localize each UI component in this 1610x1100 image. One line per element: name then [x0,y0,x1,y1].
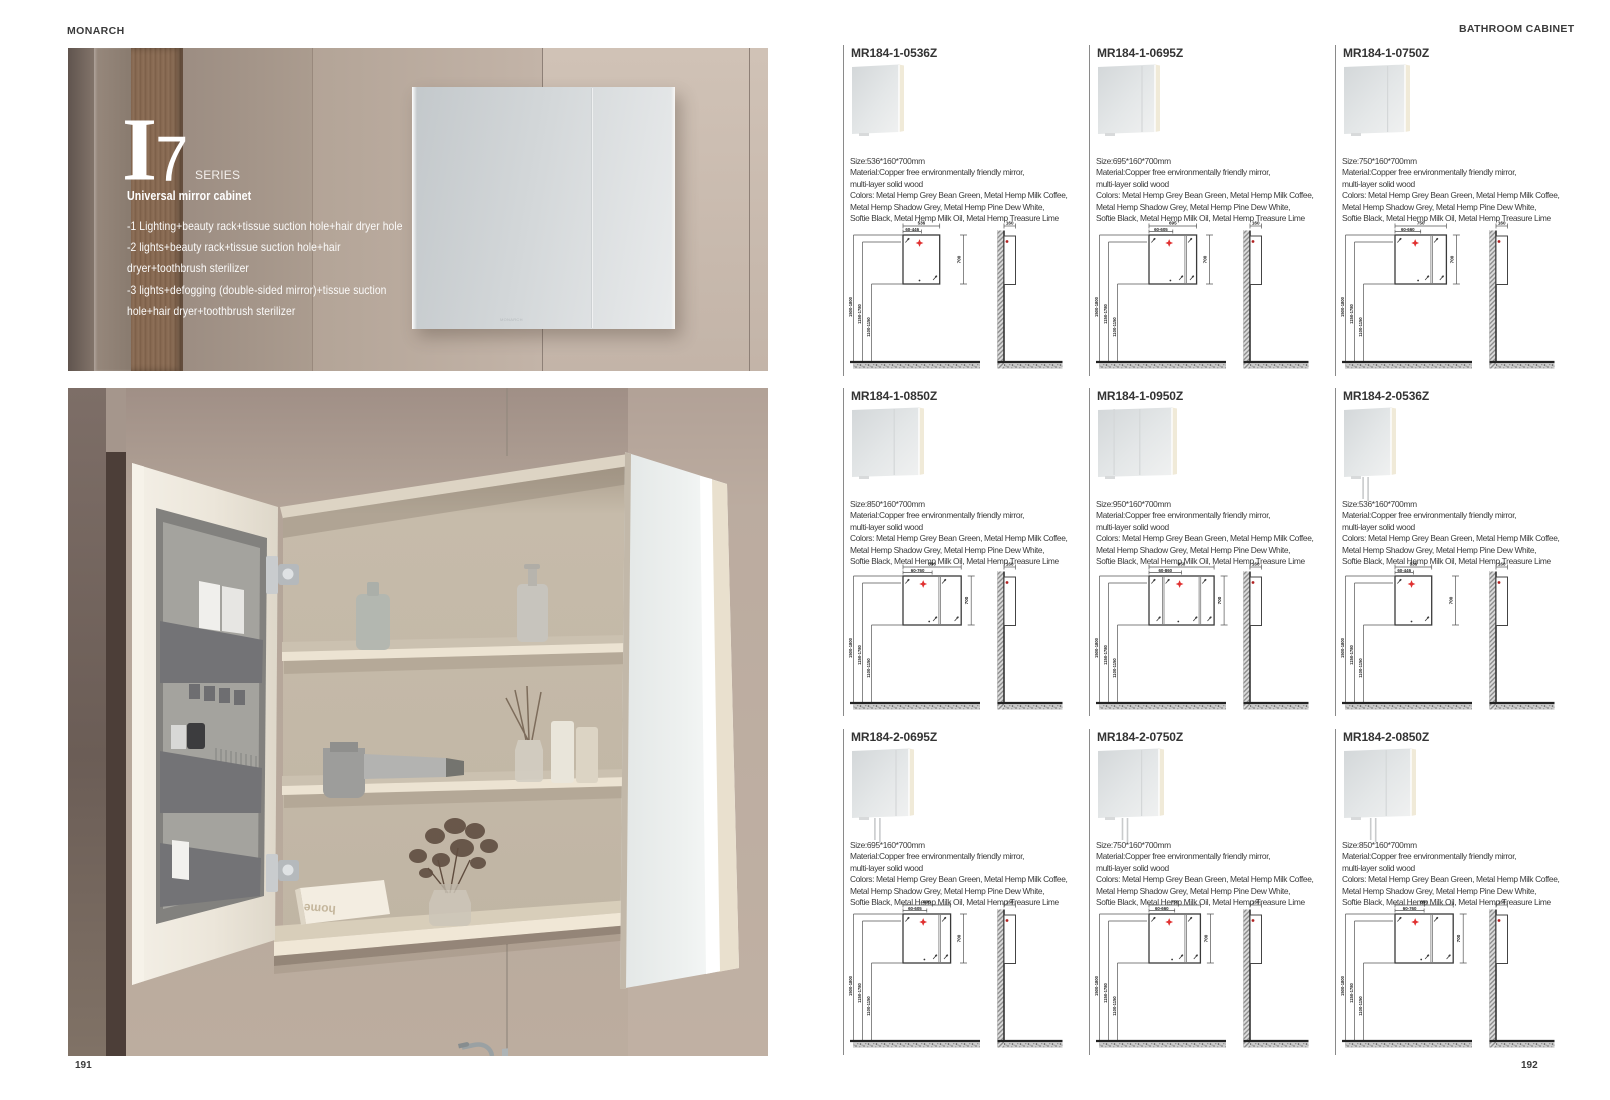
svg-text:1150-1780: 1150-1780 [857,303,862,323]
svg-text:750: 750 [1171,900,1179,905]
svg-text:1150-1780: 1150-1780 [857,644,862,664]
svg-text:1150-1780: 1150-1780 [1349,644,1354,664]
svg-text:1100-1150: 1100-1150 [866,996,871,1016]
svg-text:60-605: 60-605 [1154,227,1168,232]
svg-text:1500-1800: 1500-1800 [1094,975,1099,996]
svg-text:160: 160 [1498,900,1506,905]
svg-text:1100-1150: 1100-1150 [1112,317,1117,337]
svg-text:1150-1780: 1150-1780 [1103,644,1108,664]
svg-text:700: 700 [957,255,962,263]
svg-text:700: 700 [1449,596,1454,604]
svg-text:160: 160 [1252,900,1260,905]
svg-text:1150-1780: 1150-1780 [1103,982,1108,1002]
svg-text:60-605: 60-605 [908,906,922,911]
svg-text:1150-1780: 1150-1780 [1349,982,1354,1002]
svg-text:1500-1800: 1500-1800 [1340,296,1345,317]
svg-text:160: 160 [1006,562,1014,567]
svg-text:60-446: 60-446 [905,227,919,232]
svg-text:60-860: 60-860 [1158,568,1172,573]
svg-text:700: 700 [964,596,969,604]
svg-text:700: 700 [1456,934,1461,942]
svg-text:160: 160 [1498,221,1506,226]
svg-text:850: 850 [1420,900,1428,905]
svg-text:950: 950 [1178,562,1186,567]
svg-text:700: 700 [1217,596,1222,604]
svg-text:60-446: 60-446 [1397,568,1411,573]
svg-text:700: 700 [1203,934,1208,942]
svg-text:750: 750 [1417,221,1425,226]
svg-text:160: 160 [1006,221,1014,226]
svg-text:1150-1780: 1150-1780 [1349,303,1354,323]
svg-text:160: 160 [1252,562,1260,567]
svg-text:1500-1800: 1500-1800 [1340,975,1345,996]
svg-text:60-760: 60-760 [1403,906,1417,911]
svg-text:1500-1800: 1500-1800 [848,296,853,317]
svg-text:700: 700 [1203,255,1208,263]
svg-text:1500-1800: 1500-1800 [1340,637,1345,658]
svg-text:695: 695 [1169,221,1177,226]
svg-text:home: home [303,901,336,917]
svg-text:1100-1150: 1100-1150 [1112,658,1117,678]
svg-text:160: 160 [1498,562,1506,567]
svg-text:1100-1150: 1100-1150 [1358,317,1363,337]
svg-text:60-660: 60-660 [1155,906,1169,911]
svg-text:1150-1780: 1150-1780 [857,982,862,1002]
svg-text:850: 850 [928,562,936,567]
svg-text:1100-1150: 1100-1150 [866,658,871,678]
svg-text:60-760: 60-760 [911,568,925,573]
svg-text:695: 695 [923,900,931,905]
svg-text:160: 160 [1252,221,1260,226]
svg-text:1500-1800: 1500-1800 [1094,296,1099,317]
svg-text:1100-1150: 1100-1150 [866,317,871,337]
svg-text:60-660: 60-660 [1401,227,1415,232]
svg-text:536: 536 [918,221,926,226]
svg-text:1500-1800: 1500-1800 [848,975,853,996]
svg-text:536: 536 [1410,562,1418,567]
svg-text:1100-1150: 1100-1150 [1358,996,1363,1016]
svg-text:1500-1800: 1500-1800 [1094,637,1099,658]
svg-text:1150-1780: 1150-1780 [1103,303,1108,323]
svg-text:160: 160 [1006,900,1014,905]
svg-text:1100-1150: 1100-1150 [1112,996,1117,1016]
svg-text:700: 700 [957,934,962,942]
svg-text:700: 700 [1449,255,1454,263]
svg-text:1500-1800: 1500-1800 [848,637,853,658]
svg-text:1100-1150: 1100-1150 [1358,658,1363,678]
